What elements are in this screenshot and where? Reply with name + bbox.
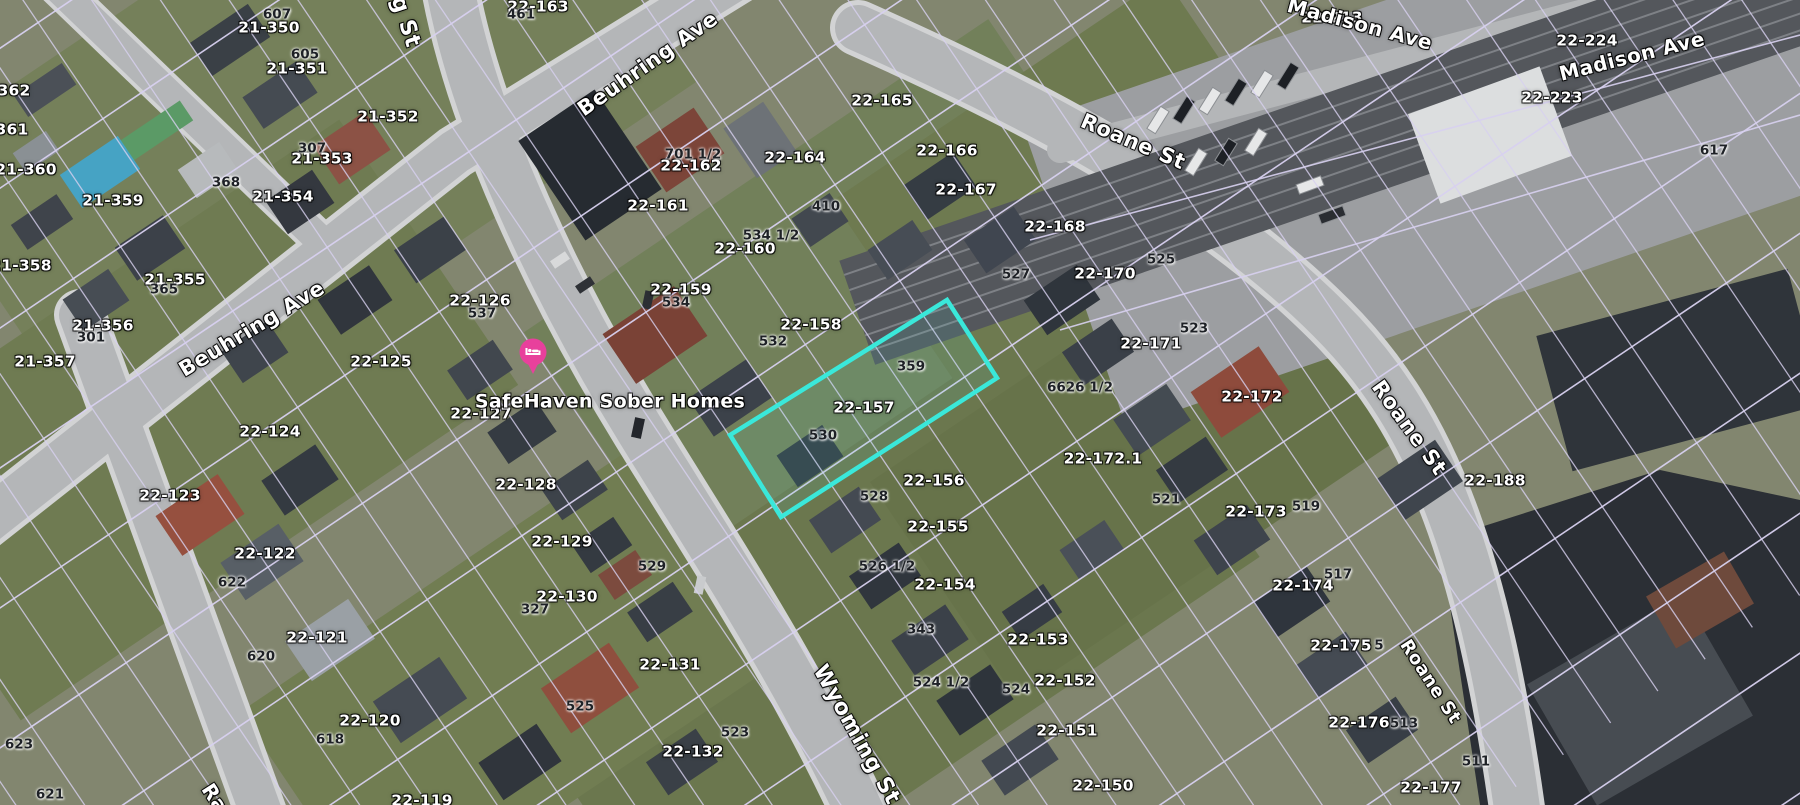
satellite-map-canvas[interactable]: 21-35021-35121-35221-35321-35421-35521-3…	[0, 0, 1800, 805]
lodging-pin-icon[interactable]	[517, 337, 549, 381]
satellite-imagery	[0, 0, 1800, 805]
